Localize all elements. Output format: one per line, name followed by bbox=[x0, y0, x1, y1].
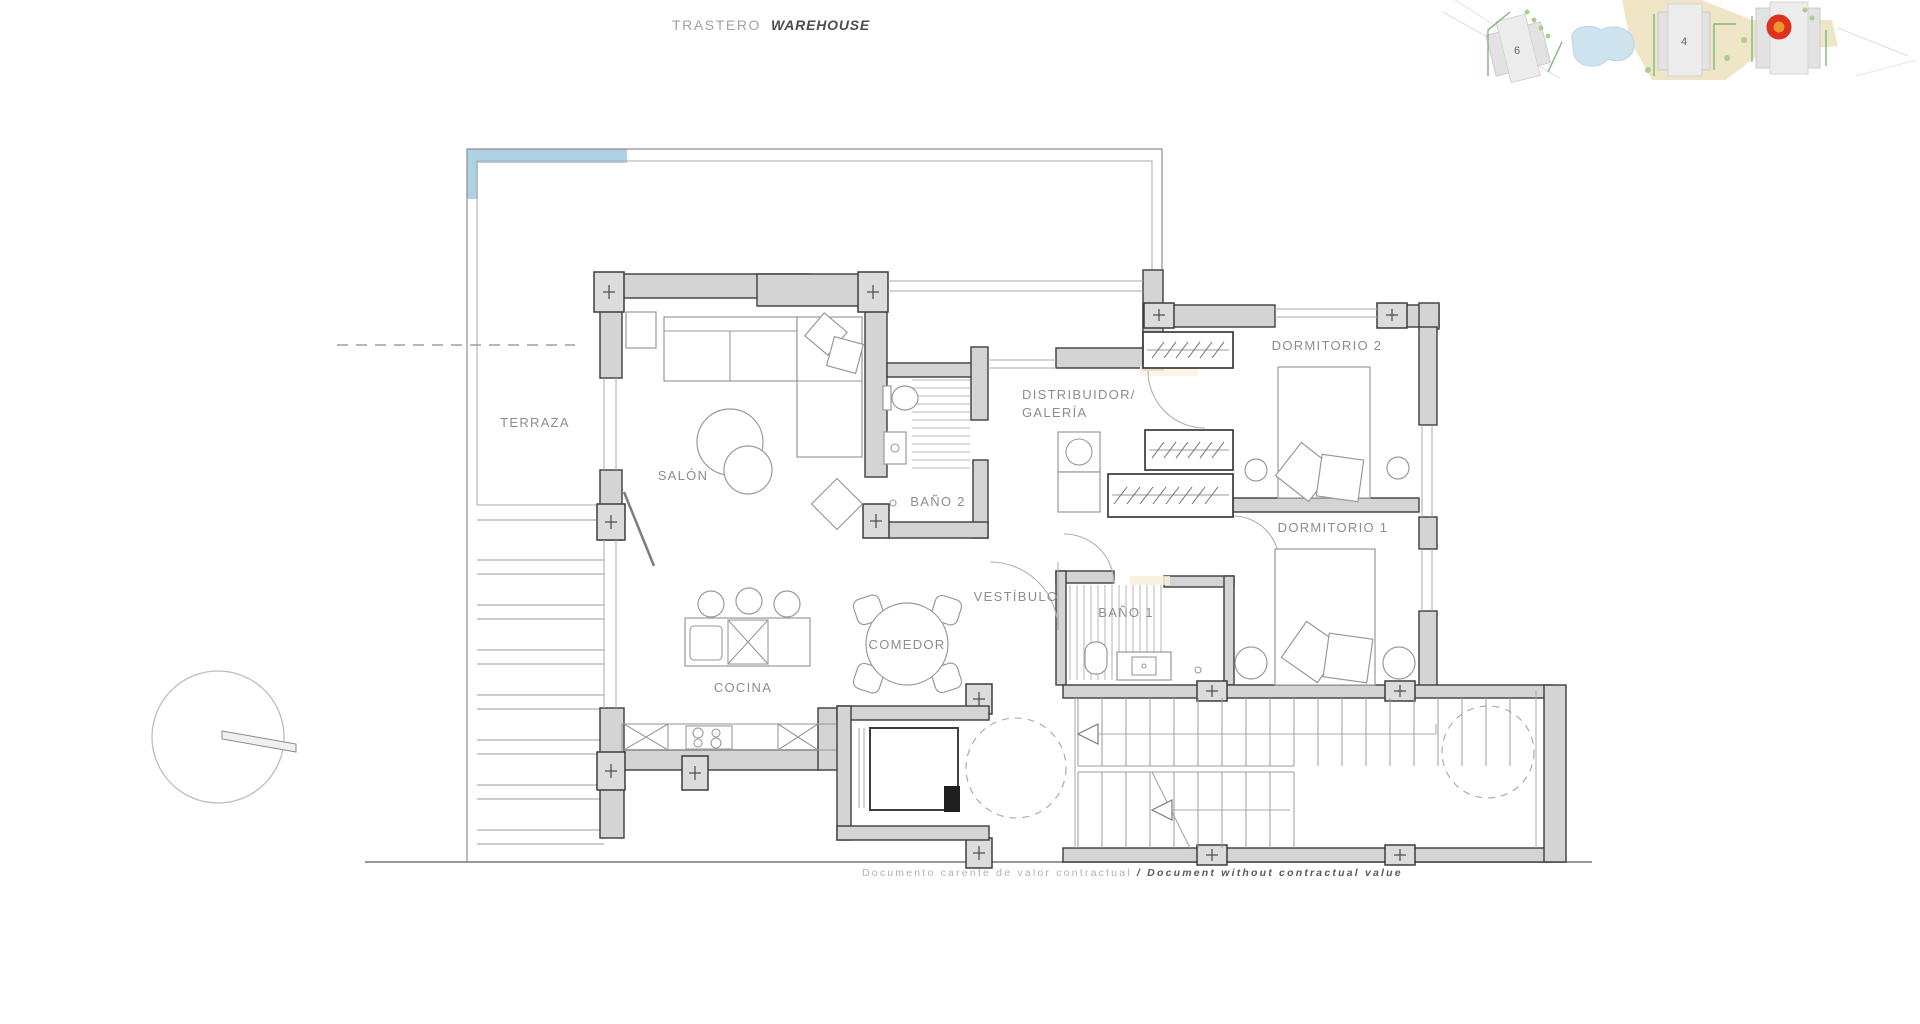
compass bbox=[152, 671, 296, 803]
kitchen-counter bbox=[622, 724, 840, 750]
label-cocina: COCINA bbox=[714, 680, 772, 695]
nightstand bbox=[1235, 647, 1267, 679]
bathroom2-door-knob bbox=[890, 500, 896, 506]
label-bano2: BAÑO 2 bbox=[910, 494, 965, 509]
bedroom1-door-arc bbox=[1233, 516, 1279, 562]
label-vestibulo: VESTÍBULO bbox=[974, 589, 1059, 604]
site-map: 6 4 bbox=[1443, 0, 1916, 86]
coffee-table-small bbox=[724, 446, 772, 494]
label-galeria: GALERÍA bbox=[1022, 405, 1087, 420]
label-dormitorio1: DORMITORIO 1 bbox=[1278, 520, 1389, 535]
nightstand bbox=[1383, 647, 1415, 679]
galeria-appliances bbox=[1058, 432, 1100, 512]
elevator-door bbox=[944, 786, 960, 812]
turning-circle bbox=[966, 718, 1066, 818]
floor-plan-page: TRASTEROWAREHOUSE bbox=[0, 0, 1920, 1024]
site-pool bbox=[1572, 26, 1635, 66]
nightstand bbox=[1387, 457, 1409, 479]
stool bbox=[698, 591, 724, 617]
stool bbox=[736, 588, 762, 614]
bedroom2-door-arc bbox=[1148, 371, 1205, 428]
compass-circle bbox=[152, 671, 284, 803]
bathroom2-fixtures bbox=[883, 380, 970, 468]
kitchen-furniture bbox=[622, 588, 840, 750]
turning-circle bbox=[1442, 706, 1534, 798]
sink bbox=[884, 432, 906, 464]
disclaimer-separator: / bbox=[1137, 867, 1142, 879]
bed-pillow bbox=[1323, 633, 1373, 683]
main-staircase bbox=[966, 690, 1536, 848]
stool bbox=[774, 591, 800, 617]
label-distribuidor: DISTRIBUIDOR/ bbox=[1022, 387, 1136, 402]
salon-furniture bbox=[626, 312, 863, 529]
site-location-marker bbox=[1770, 18, 1788, 36]
site-building-4-label: 4 bbox=[1681, 36, 1687, 48]
disclaimer: Documento carente de valor contractual /… bbox=[862, 867, 1403, 879]
label-terraza: TERRAZA bbox=[500, 415, 570, 430]
bed-pillow bbox=[1316, 454, 1363, 501]
shower-hatch bbox=[912, 380, 970, 468]
toilet-tank bbox=[883, 386, 891, 410]
compass-needle bbox=[222, 731, 296, 752]
label-comedor: COMEDOR bbox=[869, 637, 946, 652]
bedroom2-furniture bbox=[1245, 367, 1409, 502]
disclaimer-spanish: Documento carente de valor contractual bbox=[862, 867, 1132, 879]
exterior-stairs bbox=[477, 520, 604, 844]
stair-direction-arrow bbox=[1152, 800, 1172, 820]
floor-cushion bbox=[812, 479, 863, 530]
disclaimer-english: Document without contractual value bbox=[1147, 867, 1403, 879]
elevator bbox=[837, 706, 989, 840]
label-bano1: BAÑO 1 bbox=[1098, 605, 1153, 620]
hob bbox=[686, 726, 732, 749]
nightstand bbox=[1245, 459, 1267, 481]
side-table bbox=[626, 312, 656, 348]
site-building-6-label: 6 bbox=[1514, 45, 1520, 57]
washing-machine bbox=[1058, 432, 1100, 472]
label-dormitorio2: DORMITORIO 2 bbox=[1272, 338, 1383, 353]
bathroom1-fixtures bbox=[1070, 585, 1201, 680]
vanity bbox=[1117, 652, 1171, 680]
dryer bbox=[1058, 472, 1100, 512]
label-salon: SALÓN bbox=[658, 468, 709, 483]
stair-direction-arrow bbox=[1078, 724, 1098, 744]
toilet bbox=[1085, 642, 1107, 674]
terrace-highlight-left bbox=[467, 149, 478, 199]
bedroom1-furniture bbox=[1235, 549, 1415, 685]
toilet bbox=[892, 386, 918, 410]
drain bbox=[1195, 667, 1201, 673]
terrace-door-leaf bbox=[624, 492, 654, 566]
site-building-marked bbox=[1756, 2, 1820, 74]
